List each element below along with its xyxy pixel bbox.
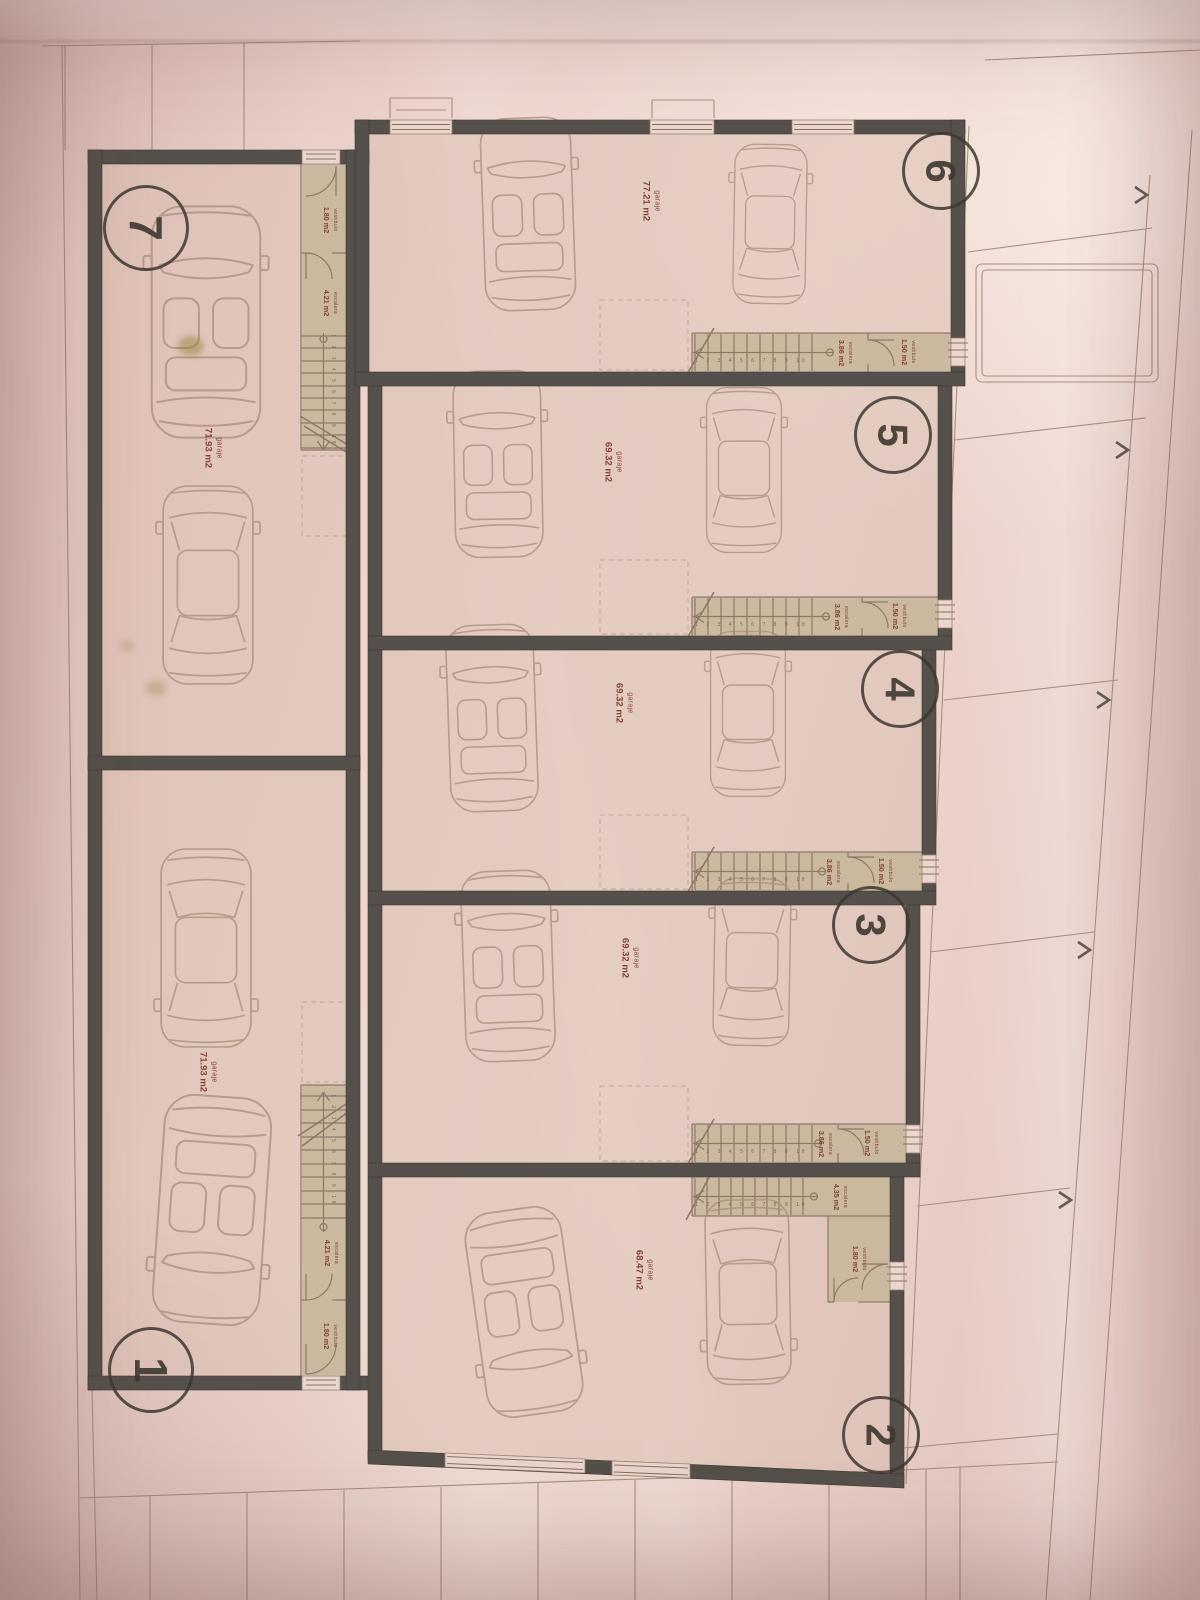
unit-7-area-label: garaje71.93 m2	[202, 428, 223, 468]
stair-tread-numbers: 1 2 3 4 5 6 7 8 9 10	[695, 1202, 807, 1208]
vestibule-area-label: vestibulo1.50 m2	[891, 603, 907, 629]
unit-4-area-label: garaje69.32 m2	[613, 683, 634, 723]
stair-tread-numbers: 1 2 3 4 5 6 7 8 9 10	[330, 1094, 336, 1206]
unit-6-number-badge: 6	[902, 132, 980, 210]
stair-area-label: escalera3.86 m2	[833, 604, 849, 630]
unit-4-number-badge: 4	[861, 650, 939, 728]
stair-area-label: escalera4.21 m2	[323, 1240, 339, 1266]
unit-2-area-label: garaje68.47 m2	[633, 1250, 654, 1290]
stair-tread-numbers: 1 2 3 4 5 6 7 8 9 10	[695, 622, 807, 628]
vestibule-area-label: vestibulo1.80 m2	[322, 1323, 338, 1349]
unit-7-number-badge: 7	[103, 185, 189, 271]
unit-1-area-label: garaje71.93 m2	[197, 1052, 218, 1092]
floorplan-photo: 7 6 5 4 3 2 1 garaje71.93 m2 garaje77.21…	[0, 0, 1200, 1600]
stair-tread-numbers: 1 2 3 4 5 6 7 8 9 10	[695, 877, 807, 883]
stair-area-label: escalera3.86 m2	[817, 1131, 833, 1157]
vestibule-area-label: vestibulo1.80 m2	[322, 207, 338, 233]
paper-stain	[146, 680, 166, 696]
unit-6-area-label: garaje77.21 m2	[640, 181, 661, 221]
vestibule-area-label: vestibulo1.80 m2	[851, 1246, 867, 1272]
stair-tread-numbers: 1 2 3 4 5 6 7 8 9 10	[695, 358, 807, 364]
unit-1-number-badge: 1	[108, 1327, 194, 1413]
unit-5-area-label: garaje69.32 m2	[602, 442, 623, 482]
vestibule-area-label: vestibulo1.50 m2	[877, 858, 893, 884]
plan-labels: 7 6 5 4 3 2 1 garaje71.93 m2 garaje77.21…	[0, 0, 1200, 1600]
unit-2-number-badge: 2	[842, 1396, 920, 1474]
paper-stain	[120, 640, 134, 652]
unit-5-number-badge: 5	[854, 396, 932, 474]
stair-tread-numbers: 1 2 3 4 5 6 7 8 9 10	[330, 334, 336, 446]
unit-3-number-badge: 3	[832, 886, 910, 964]
stair-area-label: escalera4.35 m2	[832, 1184, 848, 1210]
unit-3-area-label: garaje69.32 m2	[619, 938, 640, 978]
vestibule-area-label: vestibulo1.50 m2	[863, 1130, 879, 1156]
paper-stain	[178, 336, 204, 356]
stair-area-label: escalera4.21 m2	[322, 290, 338, 316]
stair-area-label: escalera3.86 m2	[837, 340, 853, 366]
stair-area-label: escalera3.86 m2	[825, 859, 841, 885]
vestibule-area-label: vestibulo1.50 m2	[900, 339, 916, 365]
stair-tread-numbers: 1 2 3 4 5 6 7 8 9 10	[695, 1149, 807, 1155]
